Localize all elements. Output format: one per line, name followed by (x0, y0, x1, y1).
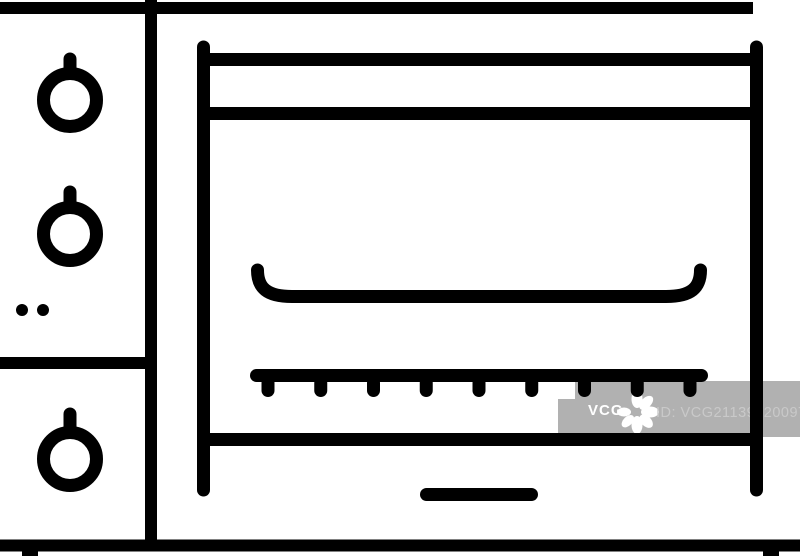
baking-tray (258, 270, 701, 297)
stove-left-foot (22, 546, 38, 556)
oven-stove-icon (0, 0, 800, 556)
burner-knob-2-ring (44, 208, 97, 261)
stove-right-foot (763, 546, 779, 556)
panel-dot-left (16, 304, 28, 316)
stock-icon-image: VCG ID: VCG211391200974 (0, 0, 800, 556)
burner-knob-1-ring (44, 74, 97, 127)
panel-dot-right (37, 304, 49, 316)
burner-knob-3-ring (44, 433, 97, 486)
grill-rack-prongs (268, 383, 690, 391)
